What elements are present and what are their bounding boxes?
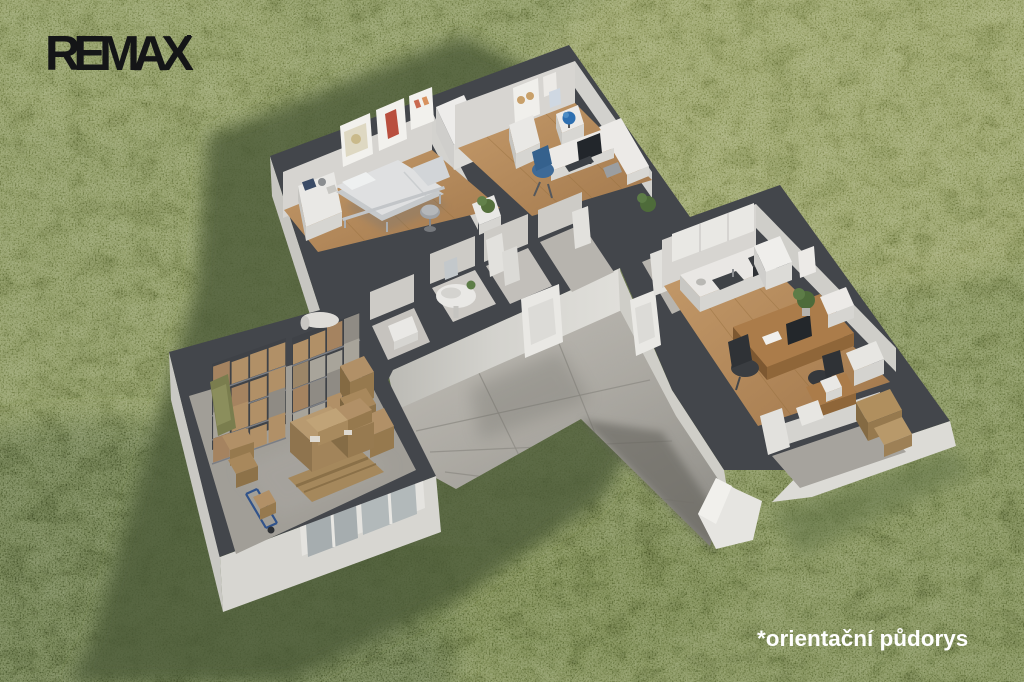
svg-text:*orientační půdorys: *orientační půdorys — [757, 626, 968, 651]
svg-text:REMAX: REMAX — [45, 27, 194, 81]
